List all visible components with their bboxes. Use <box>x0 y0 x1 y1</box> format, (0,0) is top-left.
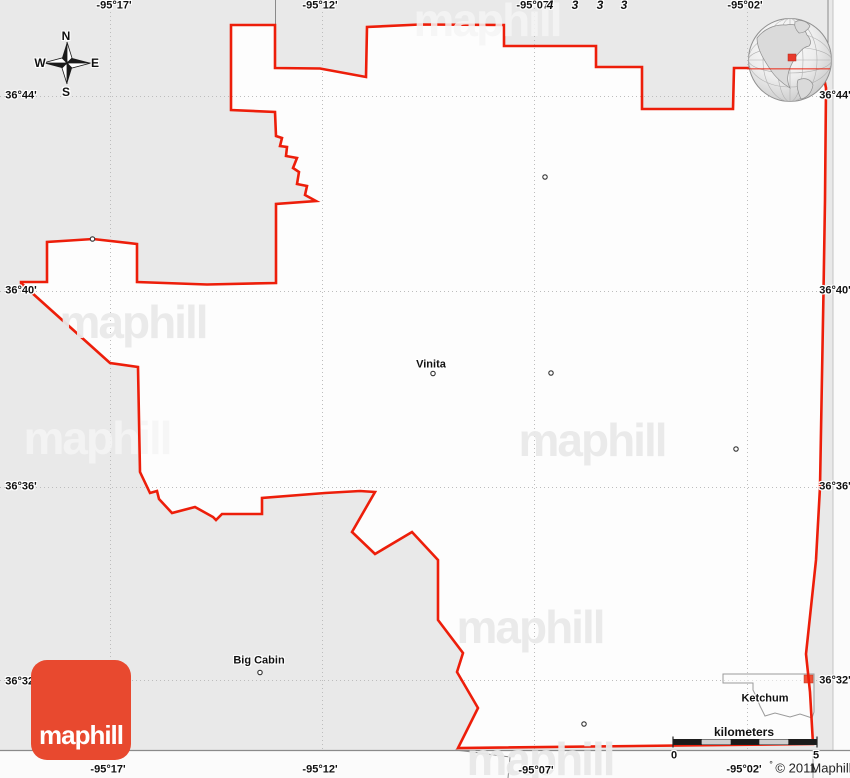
clipped-label-digit: 3 <box>597 0 604 11</box>
grid-label-left-1: 36°40' <box>5 286 37 297</box>
grid-label-right-1: 36°40' <box>819 286 850 297</box>
grid-label-top-1: -95°12' <box>302 1 337 12</box>
grid-label-bottom-0: -95°17' <box>90 765 125 776</box>
clipped-label-digit: 3 <box>621 0 628 11</box>
grid-label-right-0: 36°44' <box>819 91 850 102</box>
town-dot <box>549 371 553 375</box>
grid-label-right-3: 36°32' <box>819 676 850 687</box>
grid-label-right-2: 36°36' <box>819 482 850 493</box>
right-margin <box>833 0 850 750</box>
maphill-logo[interactable]: maphill <box>31 660 131 760</box>
town-dot <box>582 722 586 726</box>
compass-east-label: E <box>91 57 99 69</box>
grid-label-bottom-1: -95°12' <box>302 765 337 776</box>
town-dot <box>543 175 547 179</box>
town-dot-vinita <box>431 371 435 375</box>
compass-south-label: S <box>62 86 70 98</box>
brand-link[interactable]: Maphill <box>810 762 850 775</box>
map-page: maphill maphill maphill maphill maphill … <box>0 0 850 778</box>
map-canvas <box>0 0 850 778</box>
globe-location-marker <box>788 54 796 61</box>
town-dot-big-cabin <box>258 670 262 674</box>
scale-min-label: 0 <box>671 751 677 762</box>
clipped-label-digit: 4 <box>547 0 554 11</box>
scale-unit-label: kilometers <box>714 726 774 738</box>
grid-label-bottom-3: -95°02' <box>726 765 761 776</box>
town-label-ketchum: Ketchum <box>741 694 788 705</box>
grid-label-bottom-2: -95°07' <box>518 766 553 777</box>
town-label-big-cabin: Big Cabin <box>233 656 284 667</box>
maphill-logo-text: maphill <box>31 720 131 751</box>
degree-mark: ° <box>769 761 773 770</box>
grid-label-top-0: -95°17' <box>96 1 131 12</box>
grid-label-top-3: -95°02' <box>727 1 762 12</box>
bottom-margin <box>0 751 850 778</box>
clipped-label-digit: 3 <box>572 0 579 11</box>
compass-west-label: W <box>34 57 45 69</box>
grid-label-left-2: 36°36' <box>5 482 37 493</box>
compass-north-label: N <box>62 30 71 42</box>
town-dot <box>90 237 94 241</box>
grid-label-left-0: 36°44' <box>5 91 37 102</box>
town-dot <box>734 447 738 451</box>
town-label-vinita: Vinita <box>416 360 446 371</box>
